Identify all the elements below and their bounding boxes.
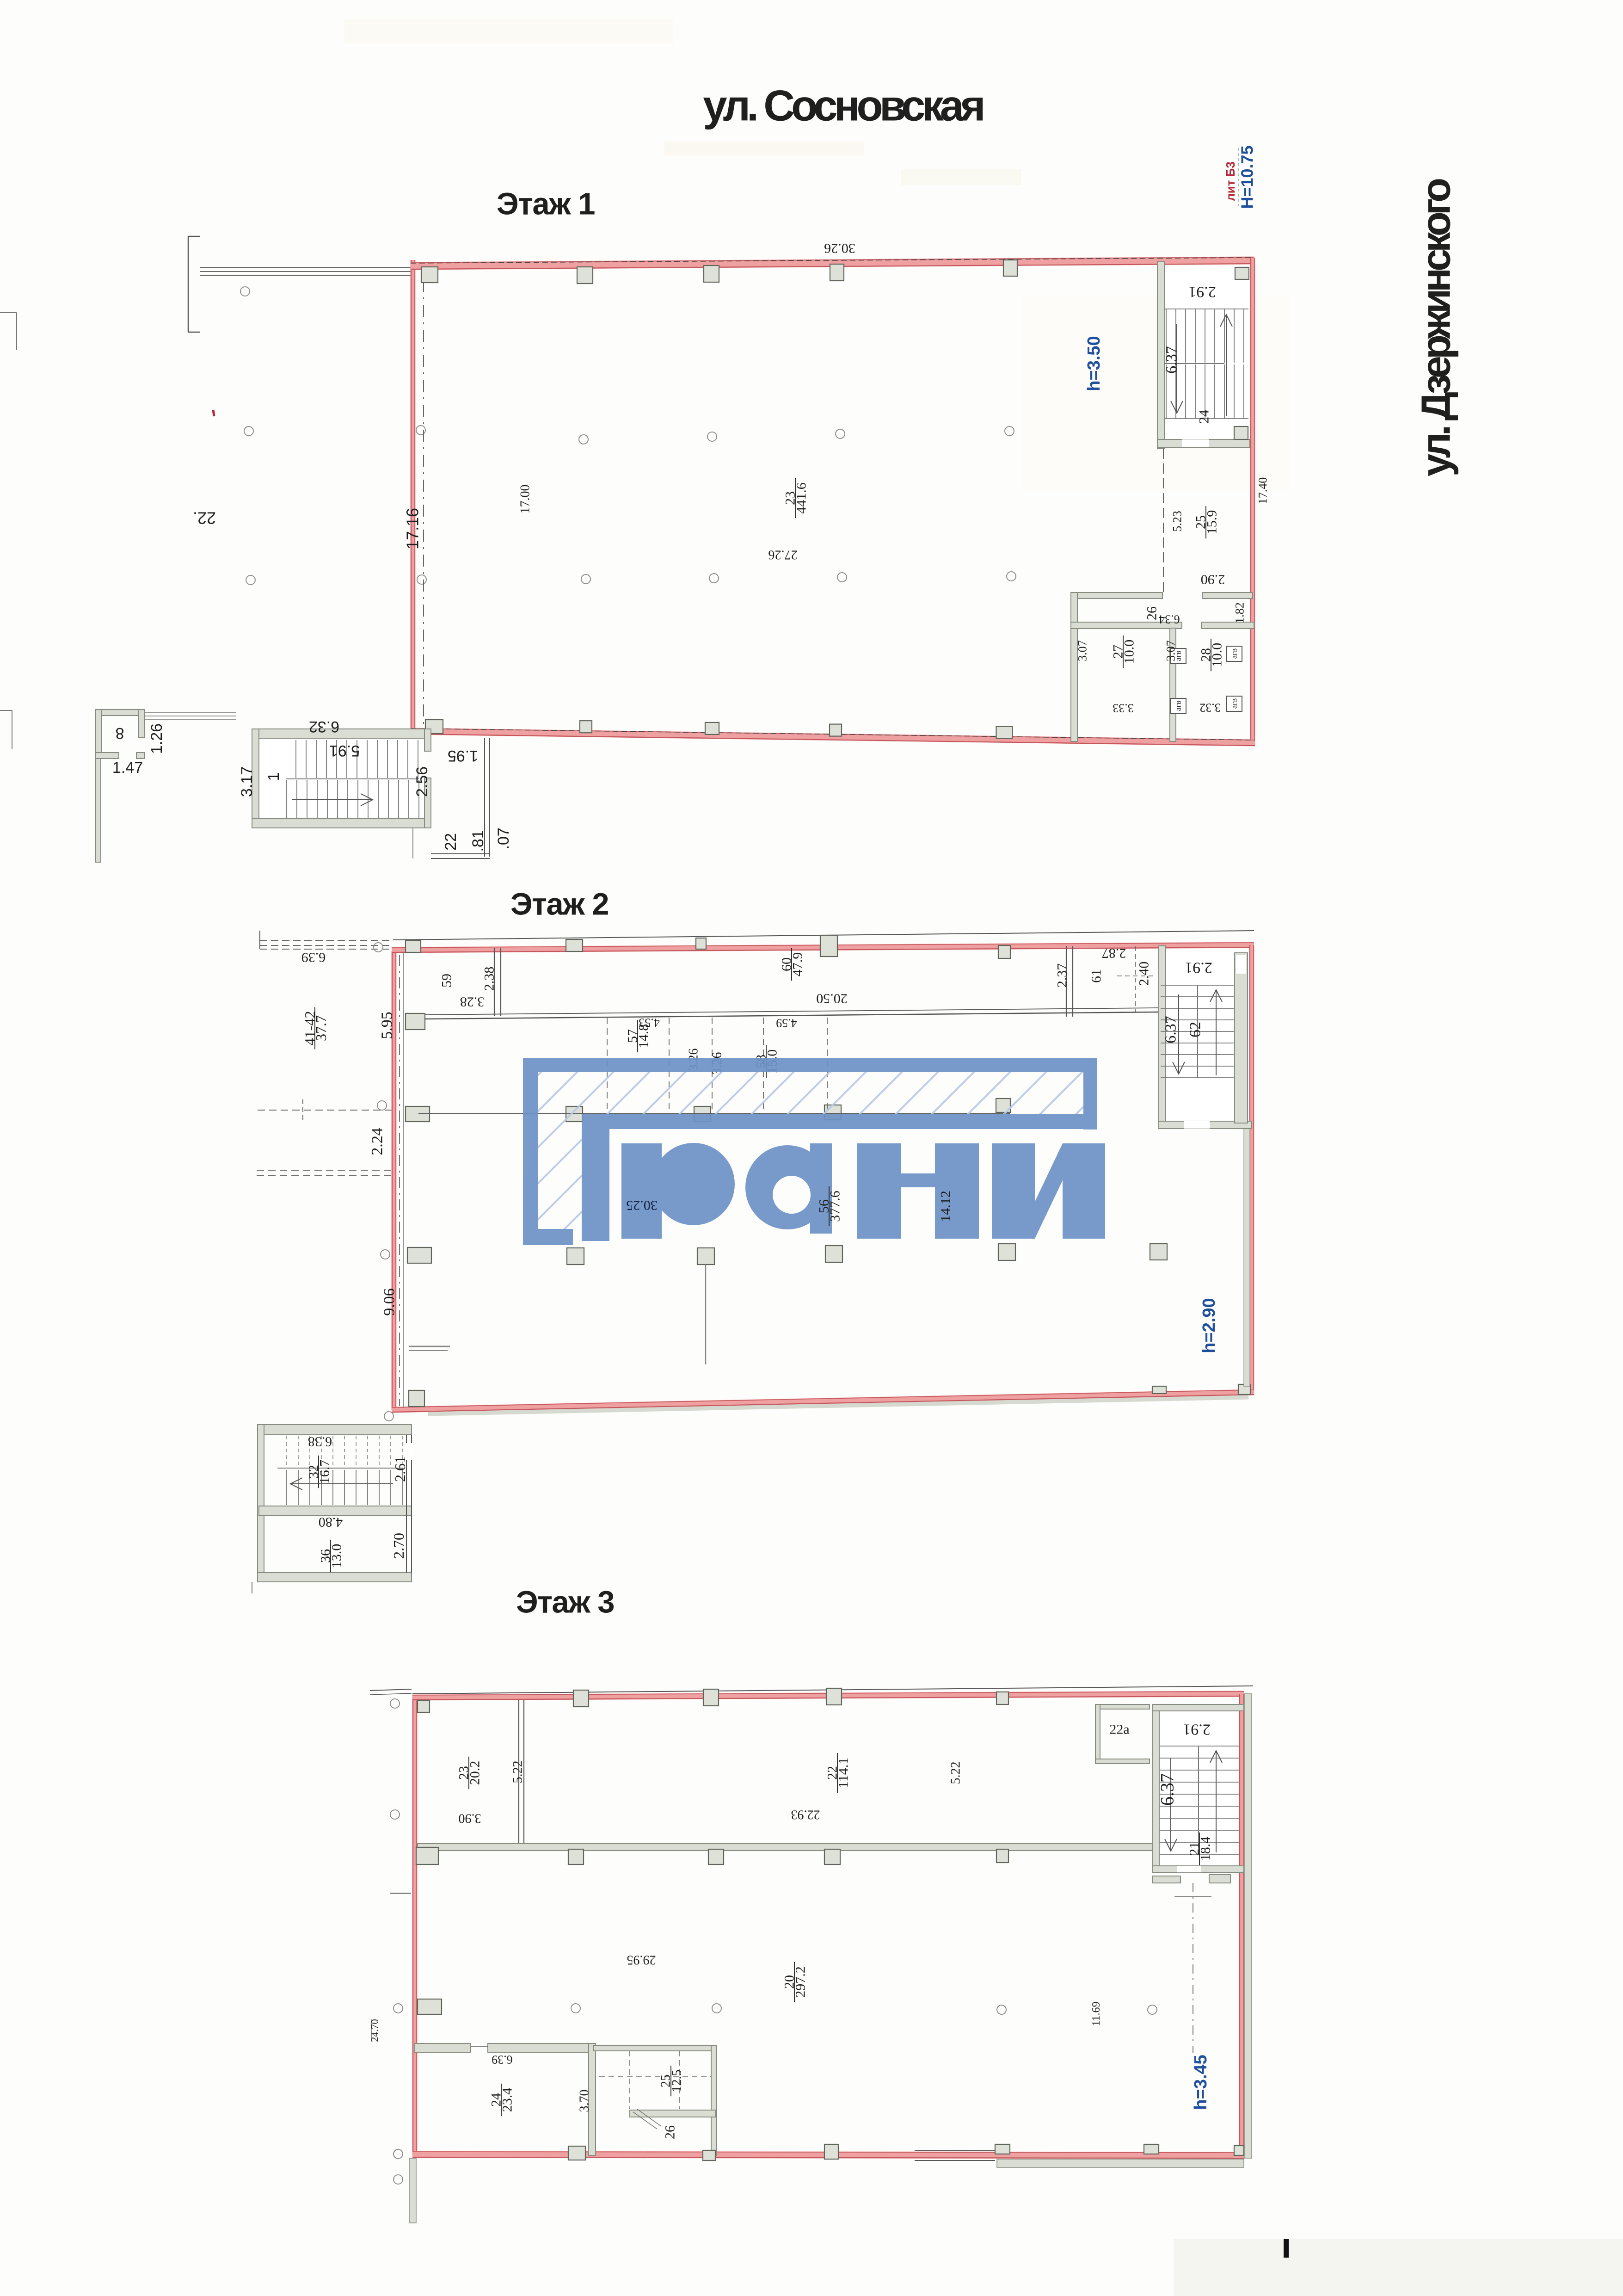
svg-text:3.70: 3.70 [578,2090,592,2112]
svg-text:Н=10.75: Н=10.75 [1238,145,1257,209]
svg-text:3.17: 3.17 [238,766,256,797]
svg-text:6.37: 6.37 [1163,346,1180,374]
svg-text:4.59: 4.59 [776,1017,797,1030]
svg-text:агв: агв [1230,698,1239,709]
svg-text:6.32: 6.32 [309,718,339,735]
svg-text:1.47: 1.47 [112,759,143,777]
svg-text:2.91: 2.91 [1183,1721,1211,1738]
svg-text:3.07: 3.07 [1164,640,1178,661]
svg-text:1: 1 [265,772,283,781]
svg-text:24.70: 24.70 [369,2019,381,2042]
svg-text:2.40: 2.40 [1137,962,1152,986]
svg-text:ул. Дзержинского: ул. Дзержинского [1413,179,1459,476]
svg-text:61: 61 [1089,969,1104,983]
svg-text:12.5: 12.5 [670,2070,684,2092]
svg-text:47.9: 47.9 [790,952,805,977]
svg-text:5.22: 5.22 [949,1762,963,1784]
svg-text:Этаж 3: Этаж 3 [516,1585,614,1620]
svg-text:5.23: 5.23 [1171,511,1184,532]
svg-text:агв: агв [1174,701,1183,711]
svg-text:114.1: 114.1 [836,1758,851,1788]
svg-text:.81: .81 [469,830,487,852]
svg-text:Этаж 1: Этаж 1 [497,187,595,222]
svg-text:22.: 22. [193,509,216,528]
svg-text:18.4: 18.4 [1198,1837,1213,1861]
svg-text:20.50: 20.50 [816,991,848,1006]
svg-text:4.80: 4.80 [319,1515,343,1530]
svg-text:3.33: 3.33 [1113,702,1134,715]
svg-text:2.61: 2.61 [392,1456,408,1482]
svg-text:6.37: 6.37 [1157,1773,1178,1806]
svg-text:.07: .07 [495,827,512,849]
svg-text:11.69: 11.69 [1090,2001,1102,2026]
svg-text:2.87: 2.87 [1102,946,1126,961]
svg-text:2.90: 2.90 [1201,572,1225,587]
svg-text:377.6: 377.6 [828,1191,843,1222]
svg-text:30.26: 30.26 [824,241,855,256]
svg-text:27.26: 27.26 [768,548,798,562]
svg-text:4.53: 4.53 [639,1016,660,1030]
svg-text:15.9: 15.9 [1205,510,1220,535]
svg-text:23.4: 23.4 [500,2088,515,2112]
svg-text:59: 59 [439,974,455,988]
svg-text:5.22: 5.22 [511,1761,525,1784]
svg-text:2.70: 2.70 [390,1533,407,1559]
svg-text:h=3.50: h=3.50 [1084,336,1104,391]
svg-text:3.32: 3.32 [1199,701,1221,715]
svg-text:6.39: 6.39 [301,950,326,965]
svg-text:22a: 22a [1109,1722,1129,1737]
svg-text:6.34: 6.34 [1159,613,1180,626]
svg-text:13.0: 13.0 [329,1544,344,1568]
svg-text:62: 62 [1187,1022,1204,1037]
svg-text:Этаж 2: Этаж 2 [510,887,609,922]
svg-text:2.56: 2.56 [413,766,431,797]
svg-text:10.0: 10.0 [1210,643,1225,667]
svg-text:10.0: 10.0 [1122,640,1137,664]
svg-text:3.07: 3.07 [1076,640,1089,661]
svg-text:2.24: 2.24 [369,1128,386,1155]
svg-text:1.95: 1.95 [448,747,478,765]
svg-text:8: 8 [116,724,124,742]
svg-text:h=2.90: h=2.90 [1199,1298,1219,1353]
svg-text:24: 24 [1197,410,1212,424]
svg-text:2.37: 2.37 [1055,963,1070,988]
svg-text:1.82: 1.82 [1233,602,1247,623]
svg-text:ул. Сосновская: ул. Сосновская [703,81,983,130]
svg-text:6.38: 6.38 [308,1434,332,1450]
svg-text:30.25: 30.25 [626,1198,658,1213]
svg-text:2.91: 2.91 [1188,284,1216,301]
svg-text:16.7: 16.7 [317,1460,332,1484]
svg-text:5.91: 5.91 [329,742,360,759]
svg-text:441.6: 441.6 [794,482,809,514]
svg-text:17.40: 17.40 [1256,477,1270,505]
svg-text:агв: агв [1230,648,1239,659]
svg-text:17.16: 17.16 [403,508,422,549]
svg-text:6.37: 6.37 [1162,1016,1180,1043]
svg-text:20.2: 20.2 [467,1761,483,1785]
svg-text:1.26: 1.26 [148,723,166,754]
svg-text:22: 22 [442,833,460,851]
svg-text:17.00: 17.00 [518,485,533,514]
svg-text:2.91: 2.91 [1185,959,1212,976]
svg-text:9.06: 9.06 [381,1288,398,1316]
svg-text:3.90: 3.90 [459,1811,481,1826]
svg-text:h=3.45: h=3.45 [1191,2055,1211,2110]
svg-text:26: 26 [663,2125,678,2139]
svg-text:лит Б3: лит Б3 [1223,161,1237,201]
svg-text:297.2: 297.2 [793,1966,808,1998]
svg-text:22.93: 22.93 [791,1808,820,1822]
svg-text:6.39: 6.39 [492,2053,513,2067]
svg-text:3.28: 3.28 [460,994,485,1010]
svg-text:5.95: 5.95 [379,1012,396,1039]
svg-text:29.95: 29.95 [627,1953,656,1967]
svg-text:26: 26 [1144,606,1160,620]
svg-text:14.12: 14.12 [938,1191,953,1222]
svg-text:2.38: 2.38 [482,967,497,991]
